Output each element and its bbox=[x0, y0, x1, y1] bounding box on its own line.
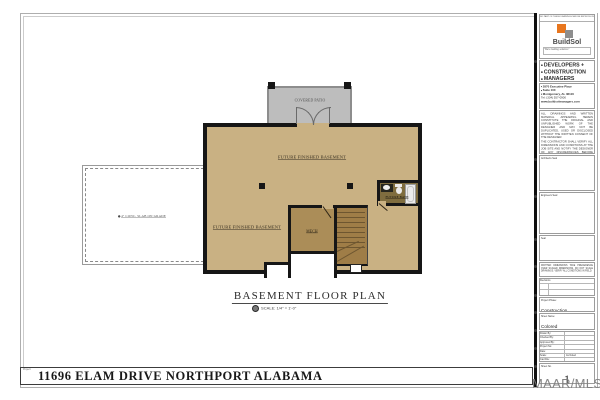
notes-text: WRITTEN DIMENSIONS TAKE PRECEDENCE OVER … bbox=[541, 264, 593, 272]
company-line: DEVELOPERS + bbox=[541, 62, 593, 69]
mls-watermark: MAAR/MLS bbox=[532, 376, 600, 391]
disclaimer-paragraph: THE CONTRACTOR SHALL VERIFY ALL DIMENSIO… bbox=[541, 140, 593, 154]
marker-dot-icon bbox=[534, 60, 537, 63]
seal-box-engineer: Engineers Seal bbox=[539, 192, 595, 234]
marker-dot-icon bbox=[534, 365, 537, 368]
marker-dot-icon bbox=[534, 238, 537, 241]
address-section: 2870 Executive Place Suite 100 Montgomer… bbox=[539, 83, 595, 109]
marker-dot-icon bbox=[534, 294, 537, 297]
basement-label-upper: FUTURE FINISHED BASEMENT bbox=[278, 155, 346, 160]
door-leaf-left bbox=[296, 107, 297, 124]
plan-title: BASEMENT FLOOR PLAN bbox=[232, 290, 388, 304]
seal-box-architect: Architects Seal bbox=[539, 155, 595, 191]
project-bar: Project: 11696 ELAM DRIVE NORTHPORT ALAB… bbox=[20, 367, 533, 385]
sheet-name-label: Sheet Name: bbox=[541, 315, 557, 318]
project-bar-corner-label: Project: bbox=[23, 368, 31, 371]
patio-post-left bbox=[268, 82, 275, 89]
basement-label-lower: FUTURE FINISHED BASEMENT bbox=[213, 225, 281, 230]
plan-scale-text: SCALE: 1/4" = 1'-0" bbox=[261, 306, 296, 311]
covered-patio-label: COVERED PATIO bbox=[295, 98, 326, 102]
sheet-name-section: Sheet Name: Colored Floor Plan bbox=[539, 313, 595, 330]
marker-dot-icon bbox=[534, 158, 537, 161]
address-line: www.buildsolmanagers.com bbox=[541, 100, 593, 104]
seal-box-label: Architects Seal bbox=[541, 157, 557, 160]
phase-section: Project Phase: Construction Documents bbox=[539, 297, 595, 312]
logo-top-note: NO PART OF THESE DRAWINGS MAY BE REPRODU… bbox=[540, 15, 594, 22]
marker-dot-icon bbox=[534, 265, 537, 268]
scale-keynote-icon bbox=[252, 305, 259, 312]
door-leaf-right bbox=[329, 107, 330, 124]
drawing-sheet: 4" CONC. SLAB ON GRADE COVERED PATIO MEC… bbox=[0, 0, 600, 400]
notes-section: WRITTEN DIMENSIONS TAKE PRECEDENCE OVER … bbox=[539, 262, 595, 277]
slab-note-label: 4" CONC. SLAB ON GRADE bbox=[118, 214, 166, 218]
buildsol-logo-icon bbox=[540, 22, 594, 39]
seal-box-label: Seal bbox=[541, 237, 557, 240]
marker-dot-icon bbox=[534, 311, 537, 314]
bathtub bbox=[405, 184, 416, 204]
fields-section: Drawn By: Checked By: Approved By: Proje… bbox=[539, 331, 595, 362]
logo-section: NO PART OF THESE DRAWINGS MAY BE REPRODU… bbox=[539, 14, 595, 59]
company-section: DEVELOPERS + CONSTRUCTION MANAGERS bbox=[539, 60, 595, 82]
marker-dot-icon bbox=[534, 329, 537, 332]
project-title: 11696 ELAM DRIVE NORTHPORT ALABAMA bbox=[21, 368, 532, 384]
disclaimer-paragraph: ALL DRAWINGS AND WRITTEN MATERIAL APPEAR… bbox=[541, 112, 593, 139]
revision-row bbox=[540, 290, 594, 295]
logo-gray-square bbox=[565, 30, 573, 38]
logo-name: BuildSol bbox=[540, 39, 594, 46]
column-post bbox=[347, 183, 353, 189]
marker-dot-icon bbox=[534, 347, 537, 350]
disclaimer-section: ALL DRAWINGS AND WRITTEN MATERIAL APPEAR… bbox=[539, 110, 595, 154]
crawl-access-box bbox=[350, 264, 362, 273]
field-row: Cad File: bbox=[540, 358, 594, 362]
phase-value: Construction Documents bbox=[541, 308, 572, 312]
stair-treads bbox=[337, 208, 365, 248]
bathtub-inner bbox=[407, 186, 414, 202]
patio-post-right bbox=[344, 82, 351, 89]
phase-label: Project Phase: bbox=[541, 299, 557, 302]
revisions-section: Revisions bbox=[539, 278, 595, 296]
company-line: CONSTRUCTION bbox=[541, 69, 593, 76]
marker-dot-icon bbox=[534, 195, 537, 198]
plan-scale-note: SCALE: 1/4" = 1'-0" bbox=[252, 303, 339, 313]
sheet-name-value: Colored Floor Plan bbox=[541, 324, 568, 330]
logo-tagline-box: "We're building solutions" bbox=[543, 47, 591, 55]
bath-sink bbox=[383, 185, 390, 190]
seal-box-generic: Seal bbox=[539, 235, 595, 261]
column-post bbox=[259, 183, 265, 189]
sheet-number-label: Sheet No. bbox=[541, 365, 557, 368]
toilet-bowl bbox=[396, 187, 402, 194]
title-block: NO PART OF THESE DRAWINGS MAY BE REPRODU… bbox=[534, 13, 597, 387]
footprint-notch-center bbox=[288, 251, 337, 278]
revisions-label: Revisions bbox=[540, 279, 550, 280]
seal-box-label: Engineers Seal bbox=[541, 194, 557, 197]
company-line: MANAGERS bbox=[541, 76, 593, 82]
future-bath-label: FUTURE BATH bbox=[385, 195, 408, 199]
mech-label: MECH bbox=[306, 229, 317, 233]
